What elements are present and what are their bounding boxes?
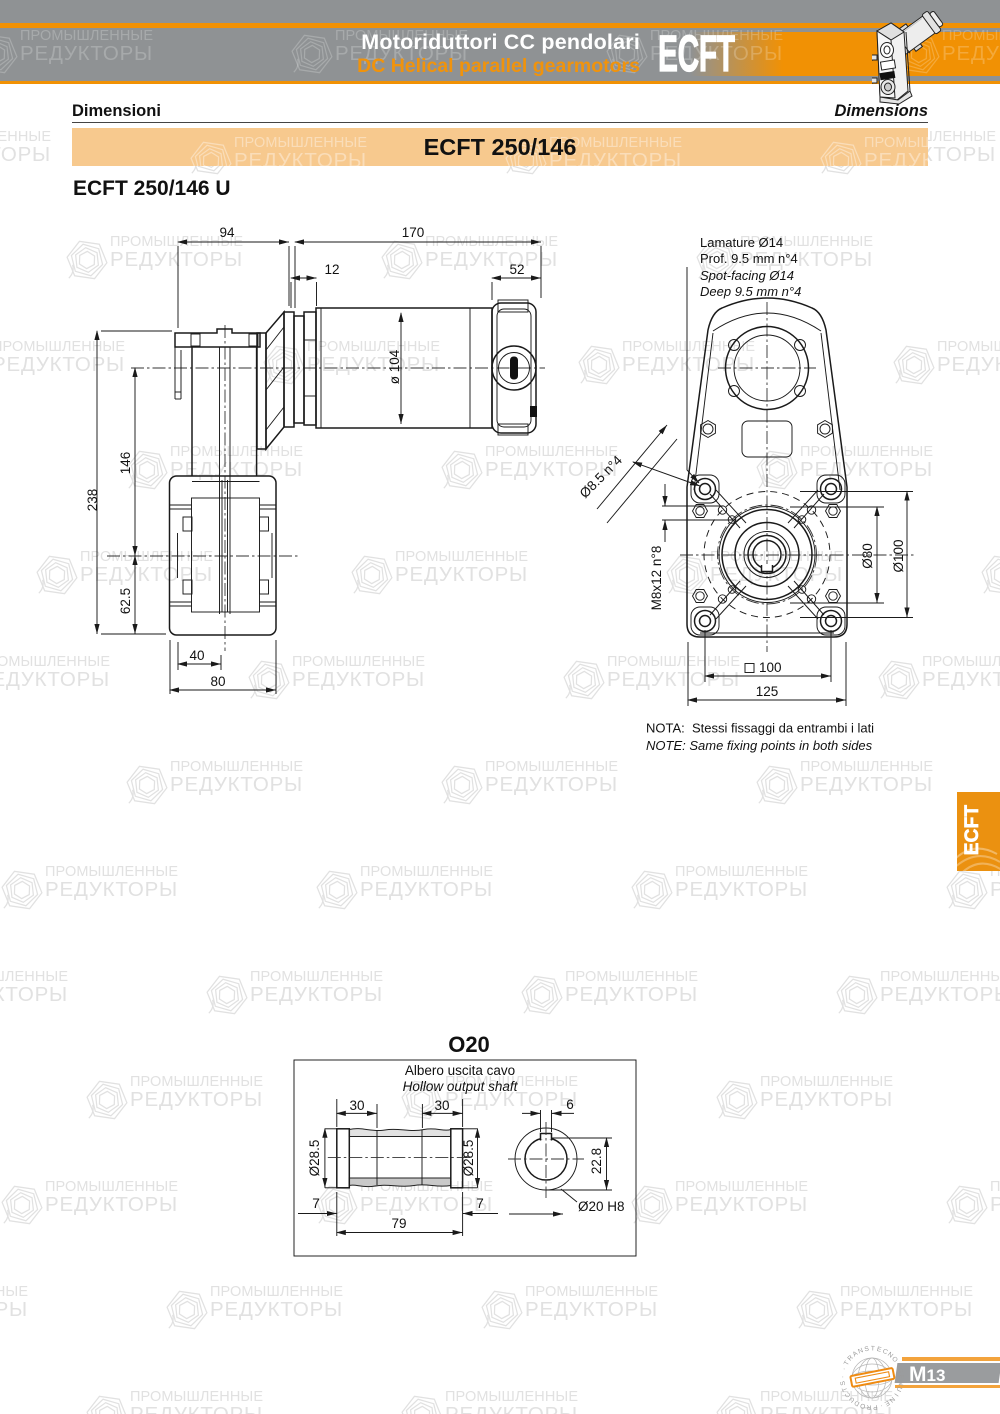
svg-text:Ø8.5 n°4: Ø8.5 n°4: [577, 452, 626, 501]
svg-text:Albero uscita cavo: Albero uscita cavo: [405, 1063, 515, 1078]
svg-text:52: 52: [509, 262, 524, 277]
svg-text:Prof. 9.5 mm n°4: Prof. 9.5 mm n°4: [700, 251, 798, 266]
svg-text:79: 79: [391, 1216, 406, 1231]
svg-text:NOTE: Same fixing points in bo: NOTE: Same fixing points in both sides: [646, 738, 873, 753]
svg-text:62.5: 62.5: [118, 588, 133, 614]
svg-text:238: 238: [85, 489, 100, 512]
svg-text:Ø100: Ø100: [891, 539, 906, 572]
svg-text:Ø28.5: Ø28.5: [307, 1140, 322, 1177]
svg-text:40: 40: [189, 648, 204, 663]
svg-text:94: 94: [219, 225, 235, 240]
svg-text:146: 146: [118, 452, 133, 475]
svg-text:Spot-facing Ø14: Spot-facing Ø14: [700, 268, 794, 283]
svg-text:O20: O20: [448, 1032, 490, 1057]
svg-text:M8x12 n°8: M8x12 n°8: [649, 546, 664, 611]
svg-text:7: 7: [312, 1196, 320, 1211]
svg-text:125: 125: [756, 684, 779, 699]
svg-text:22.8: 22.8: [589, 1148, 604, 1174]
svg-text:Hollow output shaft: Hollow output shaft: [403, 1079, 519, 1094]
svg-text:Ø80: Ø80: [860, 543, 875, 569]
svg-text:7: 7: [476, 1196, 484, 1211]
svg-text:Lamature Ø14: Lamature Ø14: [700, 235, 783, 250]
svg-text:80: 80: [210, 674, 225, 689]
svg-text:ø 104: ø 104: [387, 349, 402, 384]
svg-text:Ø28.5: Ø28.5: [461, 1140, 476, 1177]
svg-text:30: 30: [434, 1098, 449, 1113]
svg-text:Ø20 H8: Ø20 H8: [578, 1199, 625, 1214]
svg-text:100: 100: [759, 660, 782, 675]
svg-text:Deep 9.5 mm n°4: Deep 9.5 mm n°4: [700, 284, 801, 299]
svg-text:6: 6: [566, 1097, 574, 1112]
svg-text:170: 170: [402, 225, 425, 240]
svg-text:12: 12: [324, 262, 339, 277]
svg-text:30: 30: [349, 1098, 364, 1113]
svg-text:NOTA: Stessi fissaggi da entr: NOTA: Stessi fissaggi da entrambi i lati: [646, 721, 874, 736]
